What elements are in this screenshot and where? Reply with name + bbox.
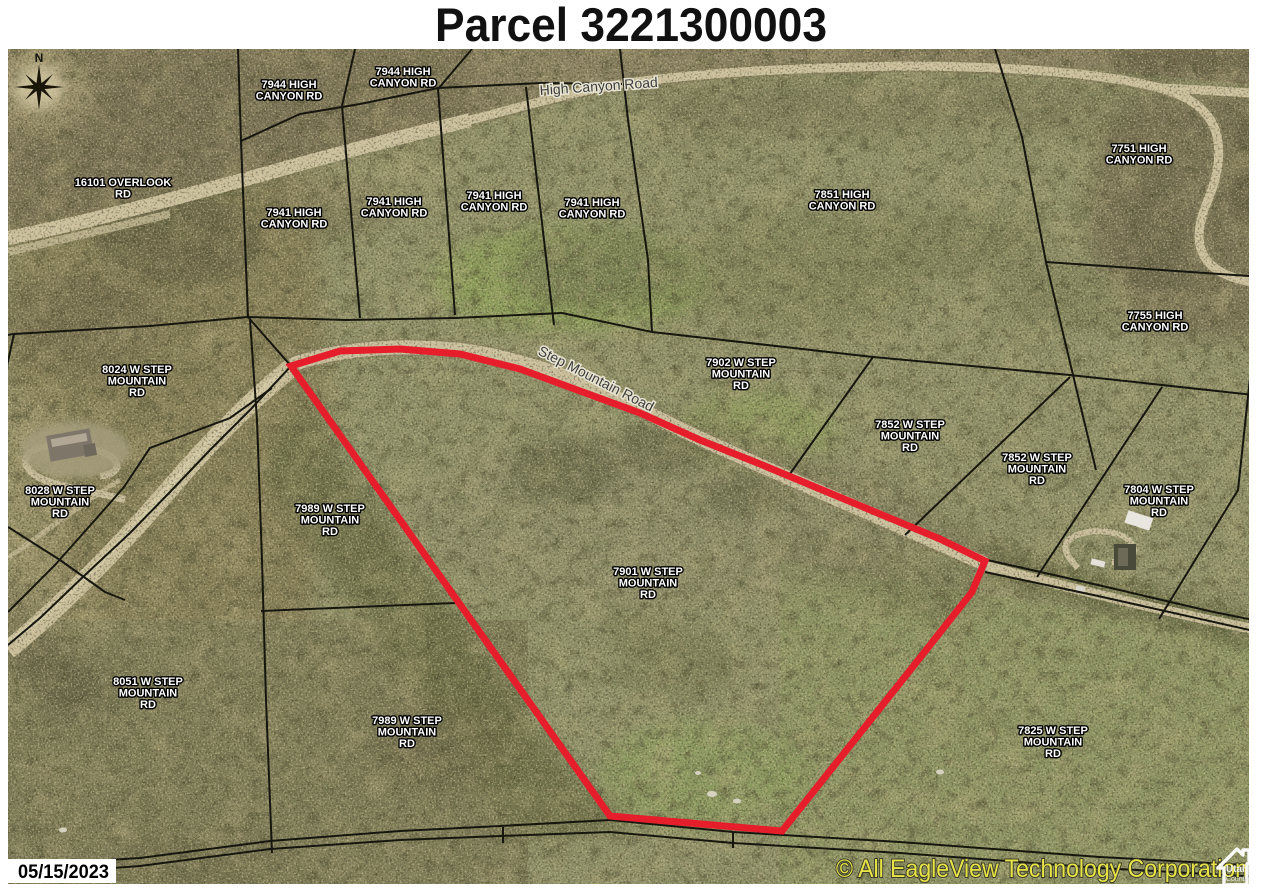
svg-text:Utah: Utah — [1226, 864, 1248, 875]
svg-text:© All EagleView Technology Cor: © All EagleView Technology Corporation — [836, 855, 1248, 883]
svg-text:7941 HIGHCANYON RD: 7941 HIGHCANYON RD — [261, 207, 328, 231]
svg-text:05/15/2023: 05/15/2023 — [18, 862, 109, 883]
svg-text:7944 HIGHCANYON RD: 7944 HIGHCANYON RD — [370, 66, 437, 90]
svg-text:7941 HIGHCANYON RD: 7941 HIGHCANYON RD — [361, 196, 428, 220]
svg-text:7755 HIGHCANYON RD: 7755 HIGHCANYON RD — [1122, 310, 1189, 334]
svg-text:Parcel 3221300003: Parcel 3221300003 — [435, 0, 827, 51]
svg-text:County: County — [1226, 876, 1249, 883]
svg-text:7944 HIGHCANYON RD: 7944 HIGHCANYON RD — [256, 79, 323, 103]
svg-text:7941 HIGHCANYON RD: 7941 HIGHCANYON RD — [461, 190, 528, 214]
svg-text:7941 HIGHCANYON RD: 7941 HIGHCANYON RD — [559, 197, 626, 221]
svg-text:7751 HIGHCANYON RD: 7751 HIGHCANYON RD — [1106, 143, 1173, 167]
svg-text:N: N — [35, 51, 44, 65]
svg-text:7851 HIGHCANYON RD: 7851 HIGHCANYON RD — [809, 189, 876, 213]
